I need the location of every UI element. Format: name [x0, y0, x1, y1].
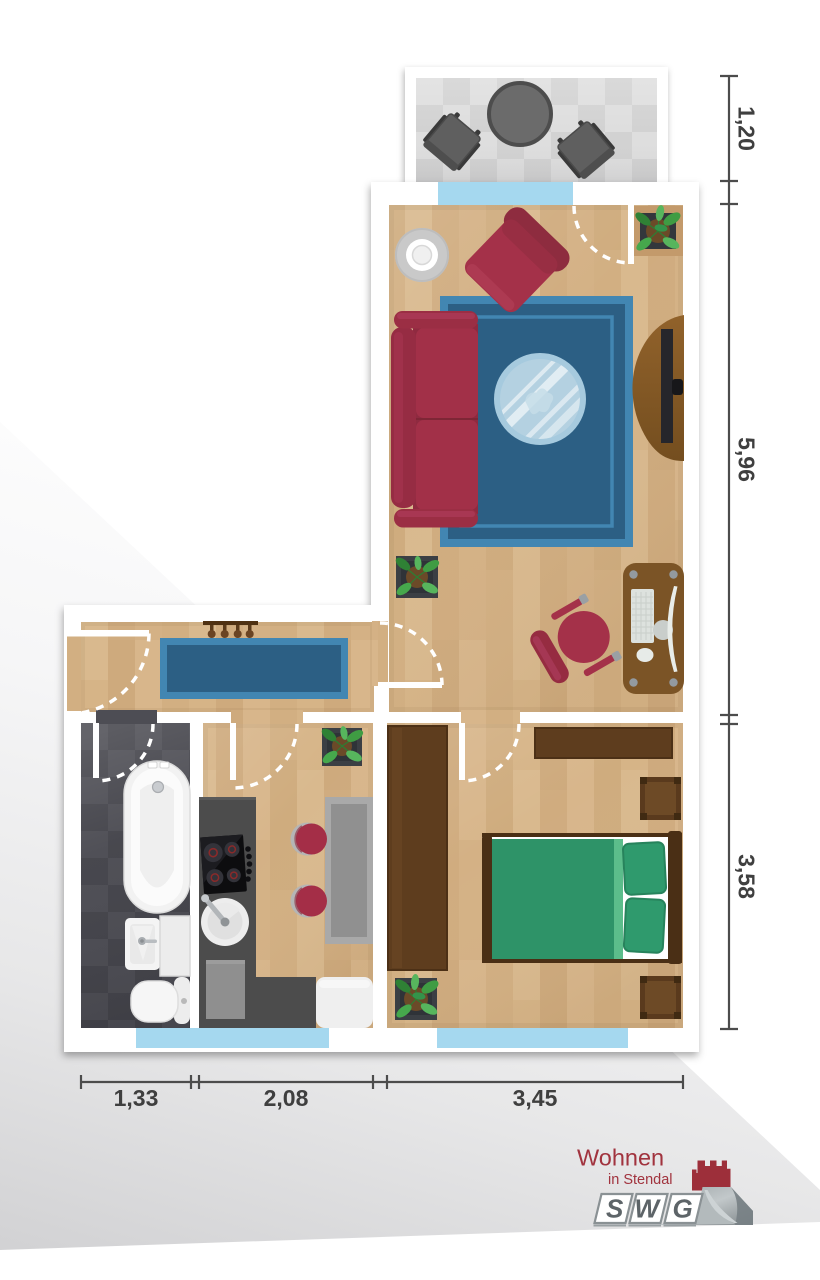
- svg-text:3,58: 3,58: [734, 854, 760, 899]
- svg-text:Wohnen: Wohnen: [577, 1145, 664, 1171]
- svg-text:5,96: 5,96: [734, 437, 760, 482]
- svg-text:in Stendal: in Stendal: [608, 1172, 673, 1188]
- svg-text:G: G: [673, 1194, 693, 1224]
- svg-text:S: S: [606, 1194, 624, 1224]
- svg-text:1,33: 1,33: [114, 1085, 159, 1111]
- svg-text:2,08: 2,08: [264, 1085, 309, 1111]
- svg-text:1,20: 1,20: [734, 106, 760, 151]
- svg-text:W: W: [635, 1194, 662, 1224]
- svg-text:3,45: 3,45: [513, 1085, 558, 1111]
